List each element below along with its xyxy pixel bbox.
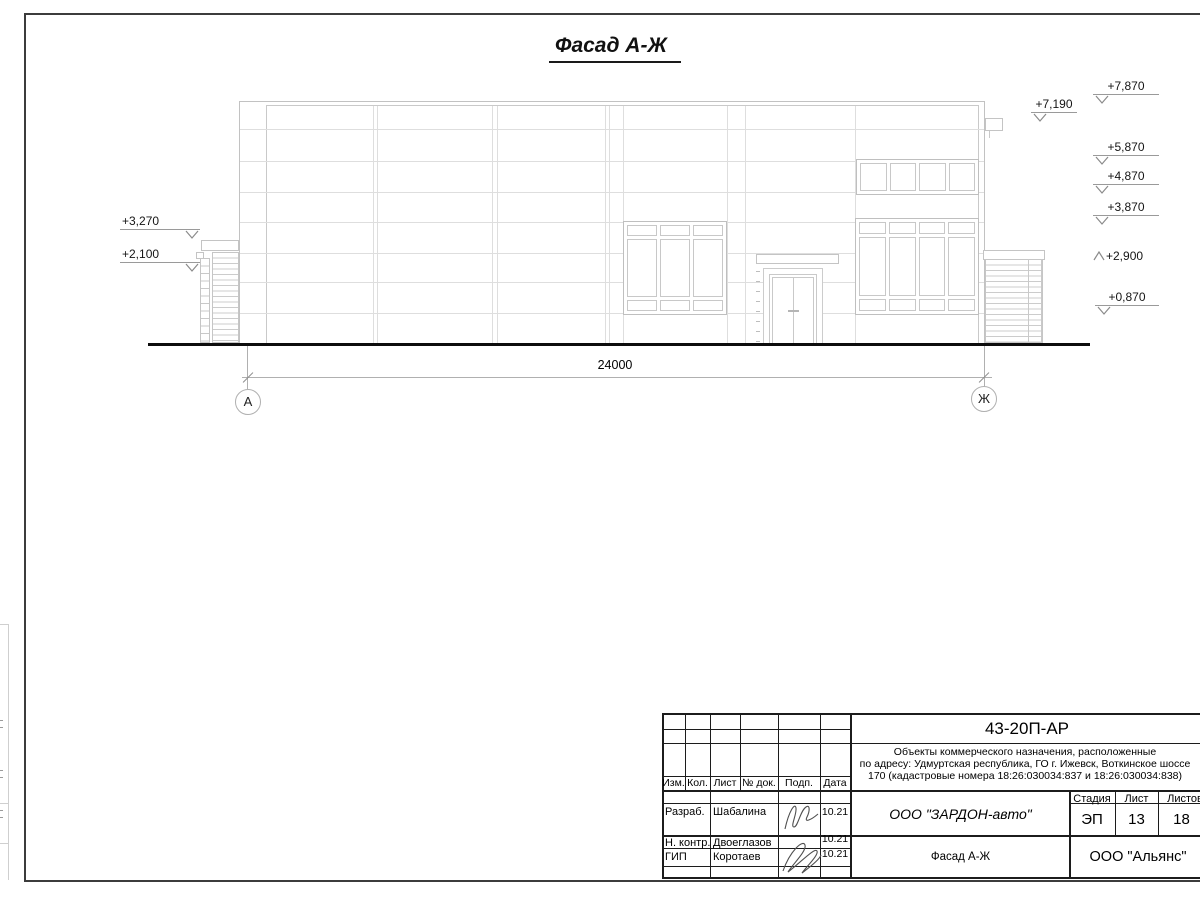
elevation-label: +4,870 (1093, 169, 1159, 185)
col-header-podp: Подп. (778, 777, 820, 789)
louver-right-mullion (1028, 259, 1029, 343)
sheet-header: Лист (1115, 793, 1158, 805)
left-margin-line (0, 624, 8, 625)
window-pane (889, 299, 916, 311)
elevation-mark: +7,870 (1093, 79, 1159, 95)
elevation-mark: +4,870 (1093, 169, 1159, 185)
elevation-arrow-icon (1097, 306, 1111, 315)
drawing-title-text: Фасад А-Ж (549, 34, 681, 63)
drainpipe-brackets (756, 262, 760, 342)
panel-joint-h (240, 129, 984, 130)
axis-extension-a (247, 346, 248, 389)
entrance-door (772, 277, 814, 344)
left-margin-line (0, 843, 8, 844)
panel-joint-v (727, 106, 728, 343)
elevation-mark: +3,870 (1093, 200, 1159, 216)
left-margin-text-stub (0, 810, 3, 818)
sheet-value: 13 (1115, 811, 1158, 828)
elevation-label: +0,870 (1095, 290, 1159, 306)
frame-top (24, 13, 1200, 15)
window-pane (693, 225, 723, 236)
panel-joint-v (609, 106, 610, 343)
elevation-label: +3,270 (120, 214, 200, 230)
col-header-ndok: № док. (740, 777, 778, 789)
sig-date: 10.21 (820, 833, 850, 845)
project-description-line1: Объекты коммерческого назначения, распол… (852, 746, 1198, 758)
window-pane (859, 237, 886, 296)
louver-right-mullion (1041, 259, 1042, 343)
window-group-right (855, 218, 979, 315)
sheets-header: Листов (1158, 793, 1200, 805)
window-pane (660, 225, 690, 236)
elevation-label: +7,190 (1031, 97, 1077, 113)
roof-spout-line (989, 131, 990, 138)
louver-right-slats (985, 259, 1043, 343)
frame-left (24, 13, 26, 882)
window-pane (919, 237, 946, 296)
louver-left-ladder (200, 258, 210, 343)
dimension-line (242, 377, 992, 378)
elevation-arrow-icon (1033, 113, 1047, 122)
elevation-mark: +2,900 (1104, 249, 1164, 264)
elevation-label: +7,870 (1093, 79, 1159, 95)
window-pane (660, 239, 690, 297)
left-margin-text-stub (0, 720, 3, 728)
stage-value: ЭП (1069, 811, 1115, 828)
sig-name: Двоеглазов (713, 837, 771, 849)
louver-left-cap (201, 240, 239, 251)
axis-circle-a: А (235, 389, 261, 415)
window-pane (859, 222, 886, 234)
elevation-mark: +3,270 (120, 214, 200, 230)
axis-extension-zh (984, 346, 985, 387)
sig-role: Разраб. (665, 806, 705, 818)
panel-joint-v (377, 106, 378, 343)
drawing-sheet: Фасад А-Ж (0, 0, 1200, 900)
panel-joint-v (497, 106, 498, 343)
sig-date: 10.21 (820, 806, 850, 818)
axis-circle-zh: Ж (971, 386, 997, 412)
left-margin-line (0, 803, 8, 804)
title-block-line (662, 729, 850, 730)
sig-name: Шабалина (713, 806, 766, 818)
elevation-arrow-icon (1093, 251, 1105, 261)
elevation-arrow-icon (185, 230, 199, 239)
window-pane (859, 299, 886, 311)
window-pane (889, 222, 916, 234)
col-header-kol: Кол. (685, 777, 710, 789)
left-margin-table (8, 624, 9, 880)
panel-joint-v (492, 106, 493, 343)
sig-date: 10.21 (820, 848, 850, 860)
pilaster-left-line (266, 105, 267, 343)
ground-line (148, 343, 1090, 346)
elevation-mark: +0,870 (1095, 290, 1159, 306)
client-org: ООО "ЗАРДОН-авто" (852, 806, 1069, 822)
doc-number: 43-20П-АР (852, 719, 1200, 739)
col-header-izm: Изм. (662, 777, 685, 789)
panel-joint-v (373, 106, 374, 343)
signature-scribble (780, 799, 822, 835)
window-pane (919, 163, 946, 191)
window-pane (627, 300, 657, 311)
window-group-left (623, 221, 727, 315)
sig-name: Коротаев (713, 851, 761, 863)
title-block-line (662, 743, 1200, 744)
window-pane (627, 225, 657, 236)
title-block-line (662, 790, 1200, 792)
drawing-title: Фасад А-Ж (470, 34, 760, 63)
window-pane (949, 163, 976, 191)
elevation-label: +5,870 (1093, 140, 1159, 156)
window-pane (890, 163, 917, 191)
sig-role: ГИП (665, 851, 687, 863)
title-block-line (710, 713, 711, 879)
left-margin-text-stub (0, 770, 3, 778)
panel-joint-v (745, 106, 746, 343)
project-description-line2: по адресу: Удмуртская республика, ГО г. … (852, 758, 1198, 770)
window-pane (889, 237, 916, 296)
elevation-arrow-icon (1095, 185, 1109, 194)
sheet-name: Фасад А-Ж (852, 851, 1069, 863)
window-pane (693, 300, 723, 311)
elevation-arrow-icon (1095, 216, 1109, 225)
project-description-line3: 170 (кадастровые номера 18:26:030034:837… (852, 770, 1198, 782)
entrance-canopy (756, 254, 839, 264)
stage-header: Стадия (1069, 793, 1115, 805)
elevation-label: +2,900 (1104, 249, 1164, 264)
elevation-label: +3,870 (1093, 200, 1159, 216)
window-band-upper-right (856, 159, 979, 195)
elevation-arrow-icon (1095, 95, 1109, 104)
elevation-mark: +5,870 (1093, 140, 1159, 156)
elevation-label: +2,100 (120, 247, 200, 263)
window-pane (660, 300, 690, 311)
window-pane (860, 163, 887, 191)
panel-joint-v (605, 106, 606, 343)
signature-scribble (777, 835, 823, 877)
col-header-list: Лист (710, 777, 740, 789)
elevation-arrow-icon (1095, 156, 1109, 165)
window-pane (919, 299, 946, 311)
window-pane (627, 239, 657, 297)
roof-spout (985, 118, 1003, 131)
window-pane (948, 299, 975, 311)
window-pane (948, 222, 975, 234)
frame-bottom (24, 880, 1200, 882)
elevation-mark: +2,100 (120, 247, 200, 263)
dimension-value: 24000 (565, 358, 665, 372)
louver-left-slats (212, 252, 239, 343)
window-pane (693, 239, 723, 297)
window-pane (948, 237, 975, 296)
sheets-value: 18 (1158, 811, 1200, 828)
col-header-data: Дата (820, 777, 850, 789)
door-handle (788, 310, 799, 312)
sig-role: Н. контр. (665, 837, 710, 849)
window-pane (919, 222, 946, 234)
elevation-mark: +7,190 (1031, 97, 1077, 113)
elevation-arrow-icon (185, 263, 199, 272)
org-name: ООО "Альянс" (1069, 849, 1200, 865)
